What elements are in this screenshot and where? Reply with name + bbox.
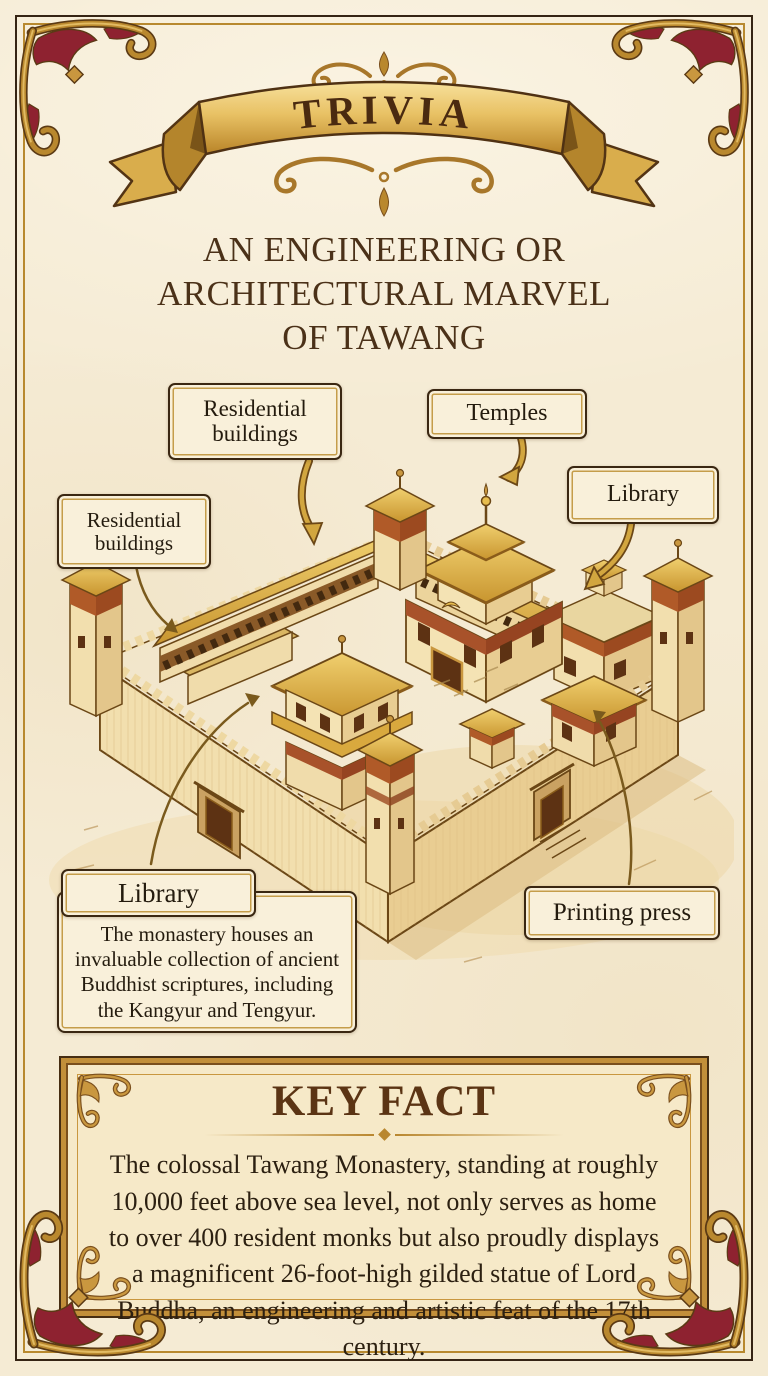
- label-printing-press: Printing press: [524, 886, 720, 940]
- label-residential-buildings-top: Residential buildings: [168, 383, 342, 460]
- diamond-ornament: [378, 1128, 391, 1141]
- back-corner-tower: [366, 470, 434, 591]
- label-temples: Temples: [427, 389, 587, 439]
- corner-flourish-top-left: [14, 14, 164, 164]
- label-text: Printing press: [553, 900, 691, 926]
- label-text: Residential buildings: [59, 509, 209, 553]
- key-fact-body: The colossal Tawang Monastery, standing …: [100, 1147, 668, 1365]
- label-text: Library: [118, 879, 199, 907]
- left-corner-tower: [62, 544, 130, 717]
- banner-bottom-flourish: [276, 159, 491, 216]
- label-library-top: Library: [567, 466, 719, 524]
- trivia-banner: TRIVIA: [104, 50, 664, 225]
- page-title-line-3: OF TAWANG: [0, 316, 768, 360]
- library-callout-text: The monastery houses an invaluable colle…: [69, 922, 345, 1023]
- infographic-page: { "banner": { "title": "TRIVIA" }, "head…: [0, 0, 768, 1376]
- corner-flourish-bottom-right: [594, 1202, 754, 1362]
- key-fact-corner-tl: [74, 1071, 136, 1133]
- banner-title: TRIVIA: [291, 86, 476, 138]
- label-text: Residential buildings: [170, 397, 340, 445]
- right-corner-tower: [644, 540, 712, 723]
- corner-flourish-bottom-left: [14, 1202, 174, 1362]
- key-fact-divider: [204, 1130, 564, 1139]
- library-callout-title: Library: [61, 869, 256, 917]
- corner-flourish-top-right: [604, 14, 754, 164]
- label-text: Library: [607, 482, 679, 507]
- page-title-line-2: ARCHITECTURAL MARVEL: [0, 272, 768, 316]
- key-fact-title: KEY FACT: [98, 1079, 670, 1124]
- page-title: AN ENGINEERING OR ARCHITECTURAL MARVEL O…: [0, 228, 768, 360]
- key-fact-corner-tr: [632, 1071, 694, 1133]
- page-title-line-1: AN ENGINEERING OR: [0, 228, 768, 272]
- label-residential-buildings-left: Residential buildings: [57, 494, 211, 569]
- label-text: Temples: [467, 401, 548, 426]
